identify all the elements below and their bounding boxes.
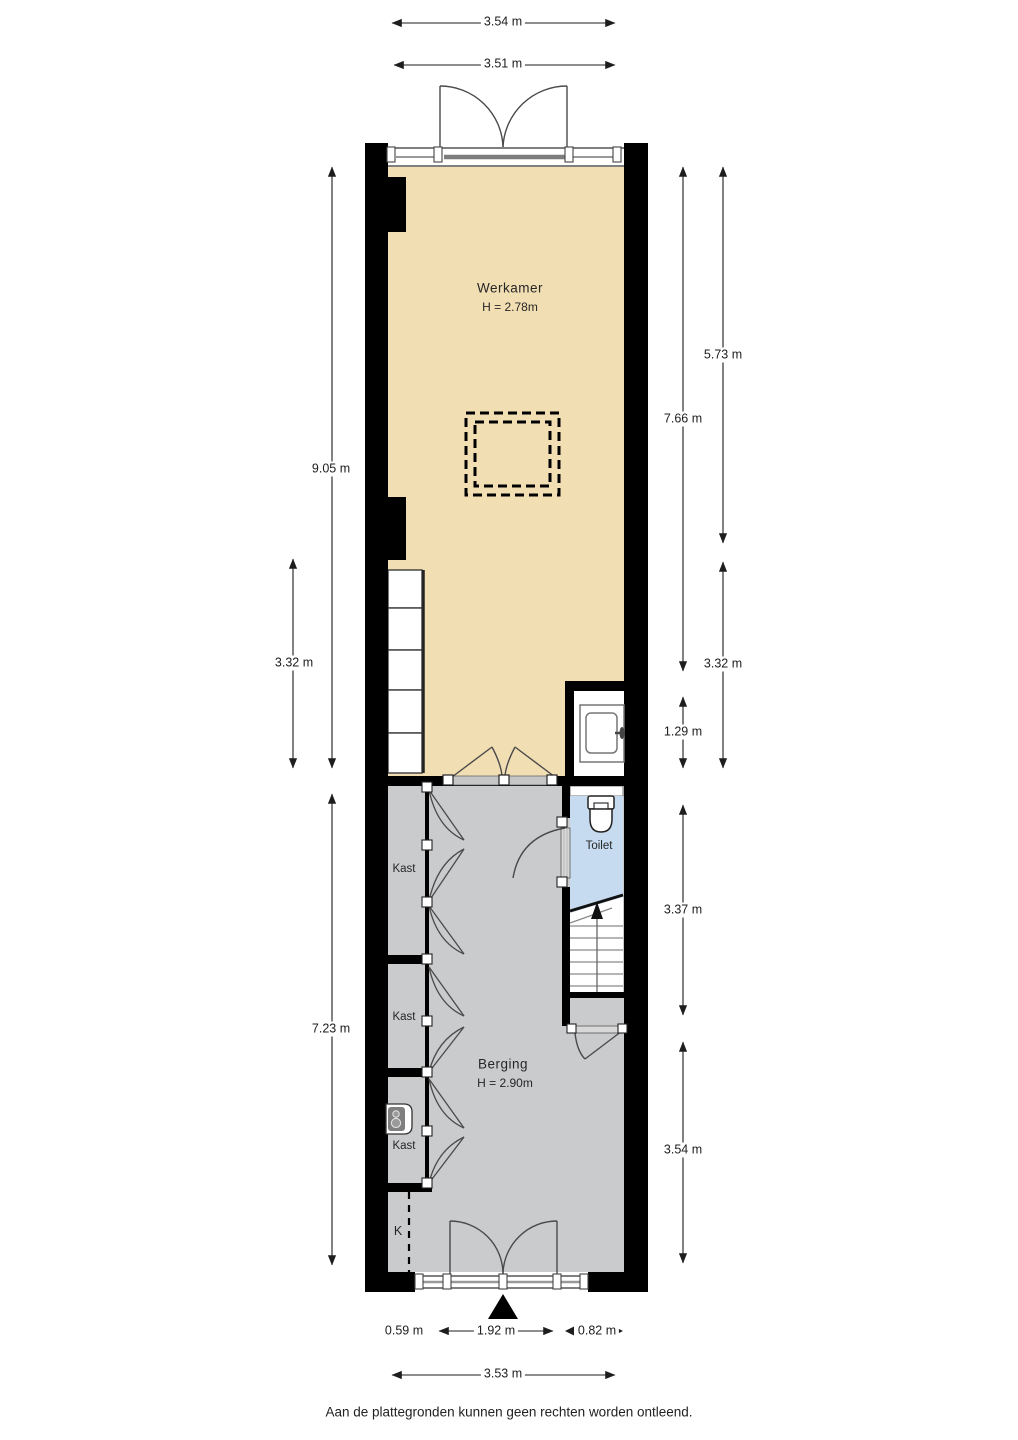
dim-top-inner: 3.51 m xyxy=(481,57,525,72)
wall-pilaster-lower xyxy=(388,497,406,560)
dim-bottom-door: 1.92 m xyxy=(474,1324,518,1339)
werkamer-label: Werkamer xyxy=(477,281,543,296)
boiler-fixture xyxy=(386,1104,412,1134)
dim-right-upper: 5.73 m xyxy=(701,348,745,363)
wall-stair-bottom xyxy=(569,992,625,998)
werkamer-closet-cells xyxy=(388,570,424,773)
kast1-label: Kast xyxy=(392,863,415,875)
dim-top-outer: 3.54 m xyxy=(481,15,525,30)
wall-right xyxy=(624,143,648,1292)
toilet-threshold xyxy=(570,786,623,796)
toilet-label: Toilet xyxy=(586,840,613,852)
top-window xyxy=(387,147,624,167)
wall-left xyxy=(365,143,388,1292)
wall-bottom-left xyxy=(365,1272,415,1292)
wall-niche-left xyxy=(565,681,574,776)
bottom-window xyxy=(415,1274,588,1291)
berging-height-label: H = 2.90m xyxy=(477,1076,533,1090)
dim-left-berging: 7.23 m xyxy=(309,1022,353,1037)
floorplan-page: 3.54 m 3.51 m 9.05 m 3.32 m 7.23 m 5.73 … xyxy=(0,0,1018,1440)
dim-bottom-right: 0.82 m xyxy=(575,1324,619,1339)
dim-bottom-total: 3.53 m xyxy=(481,1367,525,1382)
dim-right-berging: 3.54 m xyxy=(661,1143,705,1158)
dim-left-closets: 3.32 m xyxy=(272,656,316,671)
berging-label: Berging xyxy=(478,1057,528,1072)
toilet-fixture xyxy=(588,796,614,832)
disclaimer-text: Aan de plattegronden kunnen geen rechten… xyxy=(325,1405,692,1420)
dim-right-closets: 3.32 m xyxy=(701,657,745,672)
dim-right-stairs: 3.37 m xyxy=(661,903,705,918)
wall-stair-left-upper xyxy=(562,786,570,818)
kast3-label: Kast xyxy=(392,1140,415,1152)
meterkast-label: K xyxy=(394,1224,402,1238)
shower-fixture xyxy=(580,705,625,762)
dim-bottom-left: 0.59 m xyxy=(382,1324,426,1339)
dim-right-werkamer: 7.66 m xyxy=(661,412,705,427)
werkamer-height-label: H = 2.78m xyxy=(482,300,538,314)
top-double-door xyxy=(440,86,567,147)
kast2-label: Kast xyxy=(392,1011,415,1023)
wall-stair-left-lower xyxy=(562,887,570,1026)
floorplan-drawing xyxy=(0,0,1018,1440)
dim-right-niche: 1.29 m xyxy=(661,725,705,740)
entrance-arrow-icon xyxy=(488,1294,518,1319)
wall-pilaster-upper xyxy=(388,177,406,232)
wall-bottom-right xyxy=(588,1272,648,1292)
dim-left-werkamer: 9.05 m xyxy=(309,462,353,477)
